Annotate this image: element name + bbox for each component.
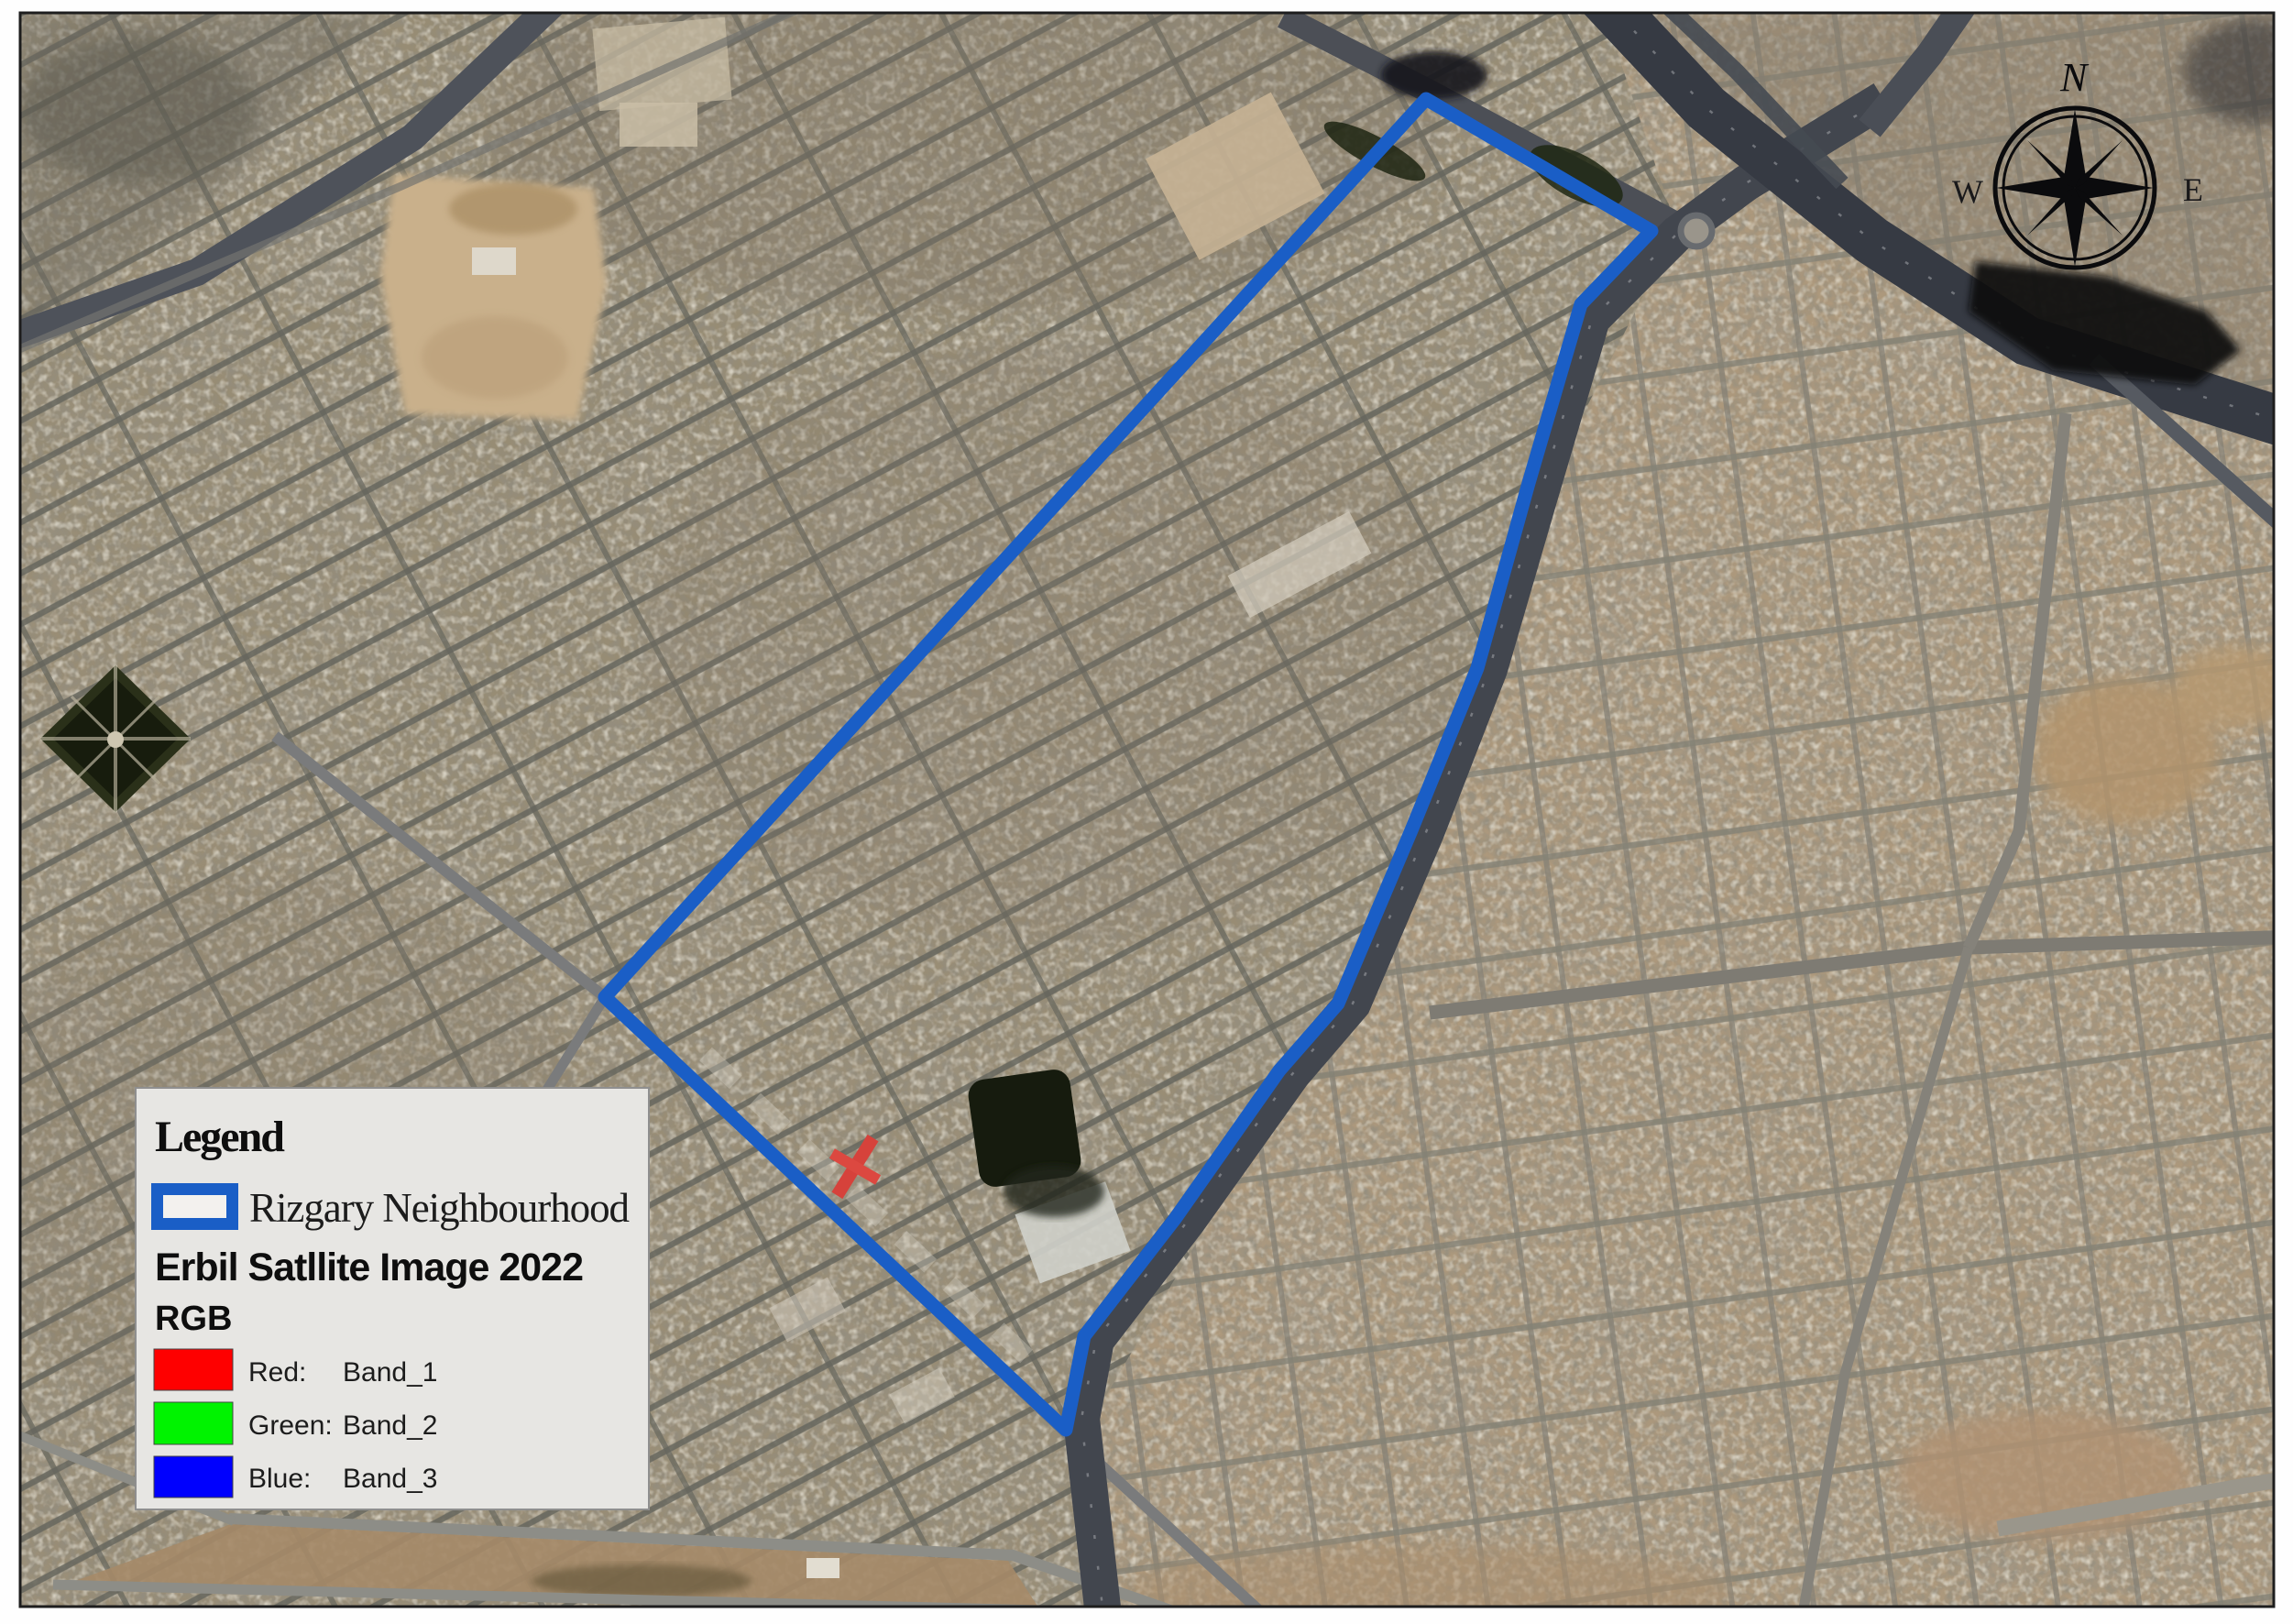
svg-text:Erbil Satllite Image 2022: Erbil Satllite Image 2022 (155, 1245, 584, 1289)
svg-text:E: E (2183, 171, 2203, 208)
svg-text:W: W (1952, 173, 1983, 210)
svg-text:Legend: Legend (155, 1113, 285, 1161)
svg-text:Band_3: Band_3 (343, 1464, 437, 1494)
svg-text:Green:: Green: (248, 1410, 333, 1441)
svg-text:RGB: RGB (155, 1300, 232, 1338)
svg-text:Rizgary Neighbourhood: Rizgary Neighbourhood (249, 1185, 630, 1231)
svg-text:Band_2: Band_2 (343, 1410, 437, 1441)
svg-text:Band_1: Band_1 (343, 1357, 437, 1388)
svg-text:N: N (2059, 55, 2090, 100)
svg-text:Blue:: Blue: (248, 1464, 311, 1494)
svg-text:Red:: Red: (248, 1357, 306, 1388)
